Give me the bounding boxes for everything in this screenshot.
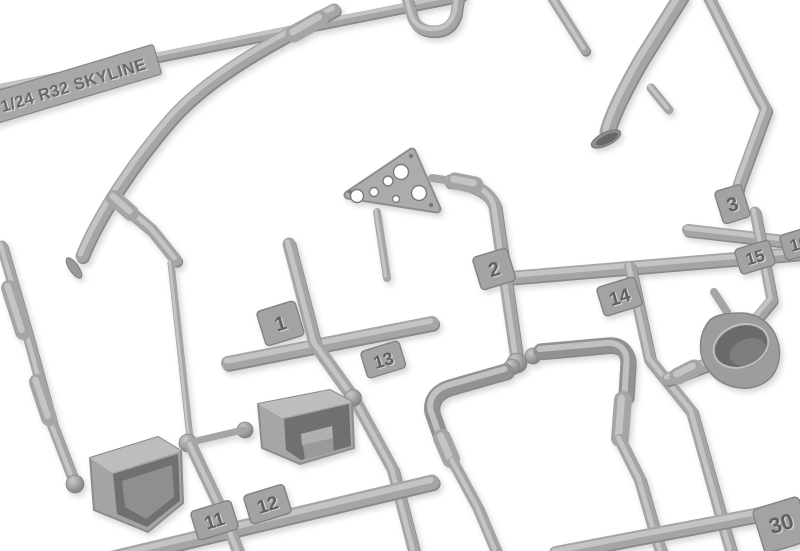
bracket-rivet-hole — [409, 154, 413, 158]
box-part-right — [258, 390, 354, 464]
bracket-elbow-sleeve — [454, 179, 476, 185]
hose-left-sleeve — [441, 436, 452, 459]
tube-highlight-stroke — [454, 179, 474, 183]
bracket-hole-small — [393, 196, 400, 203]
bracket-hole-large — [412, 186, 427, 201]
hose-right-sleeve — [619, 398, 624, 438]
tube-highlight-stroke — [619, 398, 622, 436]
bracket-rivet-hole — [429, 203, 433, 207]
sprue-photo: 1/24 R32 SKYLINE 1/24 R32 SKYLINE — [0, 0, 800, 551]
bracket-rivet-hole — [348, 190, 352, 194]
bracket-hole-large — [351, 190, 364, 203]
funnel-stem-sleeve — [677, 366, 695, 376]
ball-gate — [66, 475, 84, 493]
bracket-hole-medium — [370, 188, 379, 197]
bracket-hole-large — [394, 165, 409, 180]
bracket-hole-medium — [383, 176, 393, 186]
